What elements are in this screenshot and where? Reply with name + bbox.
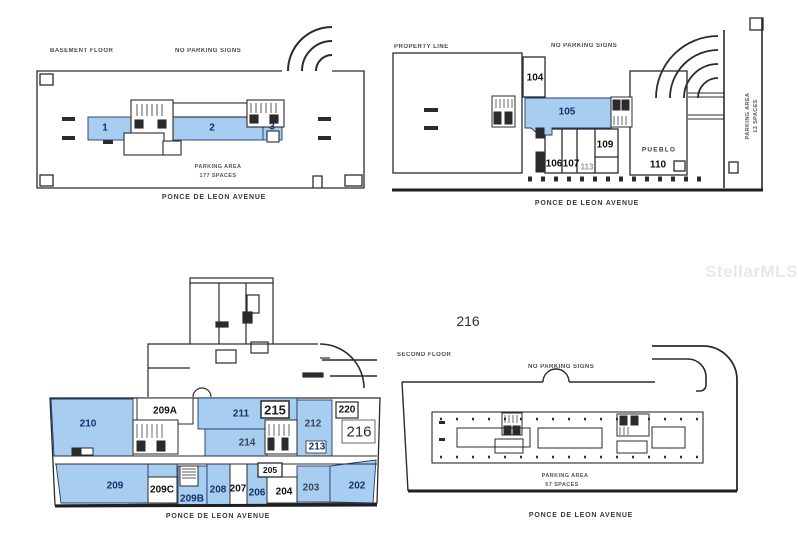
unit-209C-label: 209C [150, 485, 174, 496]
unit-207-label: 207 [230, 484, 247, 495]
unit-110-label: 110 [650, 160, 666, 171]
basement-heading-left: BASEMENT FLOOR [50, 48, 113, 54]
unit-206-label: 206 [249, 488, 266, 499]
unit-205-label: 205 [263, 465, 277, 475]
floorplan-image: BASEMENT FLOOR NO PARKING SIGNS 1 2 3 PA… [0, 0, 798, 547]
stellar-mls-watermark: StellarMLS [705, 262, 798, 282]
unit-204-label: 204 [276, 487, 293, 498]
first-street-label: PONCE DE LEON AVENUE [535, 200, 639, 207]
basement-street-label: PONCE DE LEON AVENUE [162, 194, 266, 201]
unit-106-label: 106 [546, 159, 563, 170]
unit-3-label: 3 [269, 122, 275, 133]
unit-107-label: 107 [563, 159, 580, 170]
unit-214-label: 214 [239, 438, 256, 449]
first-heading-left: PROPERTY LINE [394, 44, 449, 50]
unit-113-label: 113 [581, 163, 594, 172]
unit-220-label: 220 [339, 405, 356, 416]
unit-209A-label: 209A [153, 406, 177, 417]
unit-109-label: 109 [597, 140, 614, 151]
unit-213-label: 213 [309, 442, 326, 453]
second-street-label: PONCE DE LEON AVENUE [166, 513, 270, 520]
parking-level-heading-left: SECOND FLOOR [397, 352, 451, 358]
unit-214-region [205, 429, 267, 456]
unit-209-label: 209 [107, 481, 124, 492]
basement-parking-spaces-label: 177 SPACES [200, 173, 237, 179]
parking-level-street-label: PONCE DE LEON AVENUE [529, 512, 633, 519]
floorplan-linework [0, 0, 798, 547]
parking-level-heading-center: NO PARKING SIGNS [528, 364, 594, 370]
pueblo-label: PUEBLO [642, 147, 676, 154]
parking-level-spaces-label: 57 SPACES [545, 482, 578, 488]
unit-215-label: 215 [264, 403, 286, 418]
unit-216-label: 216 [346, 424, 371, 441]
unit-203-label: 203 [303, 483, 320, 494]
unit-216-annotation: 216 [456, 313, 479, 329]
unit-1-label: 1 [102, 123, 108, 134]
basement-heading-right: NO PARKING SIGNS [175, 48, 241, 54]
first-heading-right: NO PARKING SIGNS [551, 43, 617, 49]
unit-209-region [56, 464, 148, 503]
unit-2-label: 2 [209, 123, 215, 134]
unit-105-label: 105 [559, 107, 576, 118]
parking-level-area-label: PARKING AREA [542, 473, 589, 479]
basement-parking-area-label: PARKING AREA [195, 164, 242, 170]
unit-104-label: 104 [527, 73, 544, 84]
first-parking-spaces-label: 13 SPACES [753, 99, 759, 132]
unit-212-label: 212 [305, 419, 322, 430]
first-parking-area-label: PARKING AREA [745, 93, 751, 140]
second-floor-upper-wing [148, 278, 377, 397]
unit-210-label: 210 [80, 419, 97, 430]
unit-211-label: 211 [233, 409, 249, 420]
corridor-strip [148, 464, 177, 477]
unit-202-label: 202 [349, 481, 366, 492]
unit-208-label: 208 [210, 485, 227, 496]
unit-209B-label: 209B [180, 494, 204, 505]
